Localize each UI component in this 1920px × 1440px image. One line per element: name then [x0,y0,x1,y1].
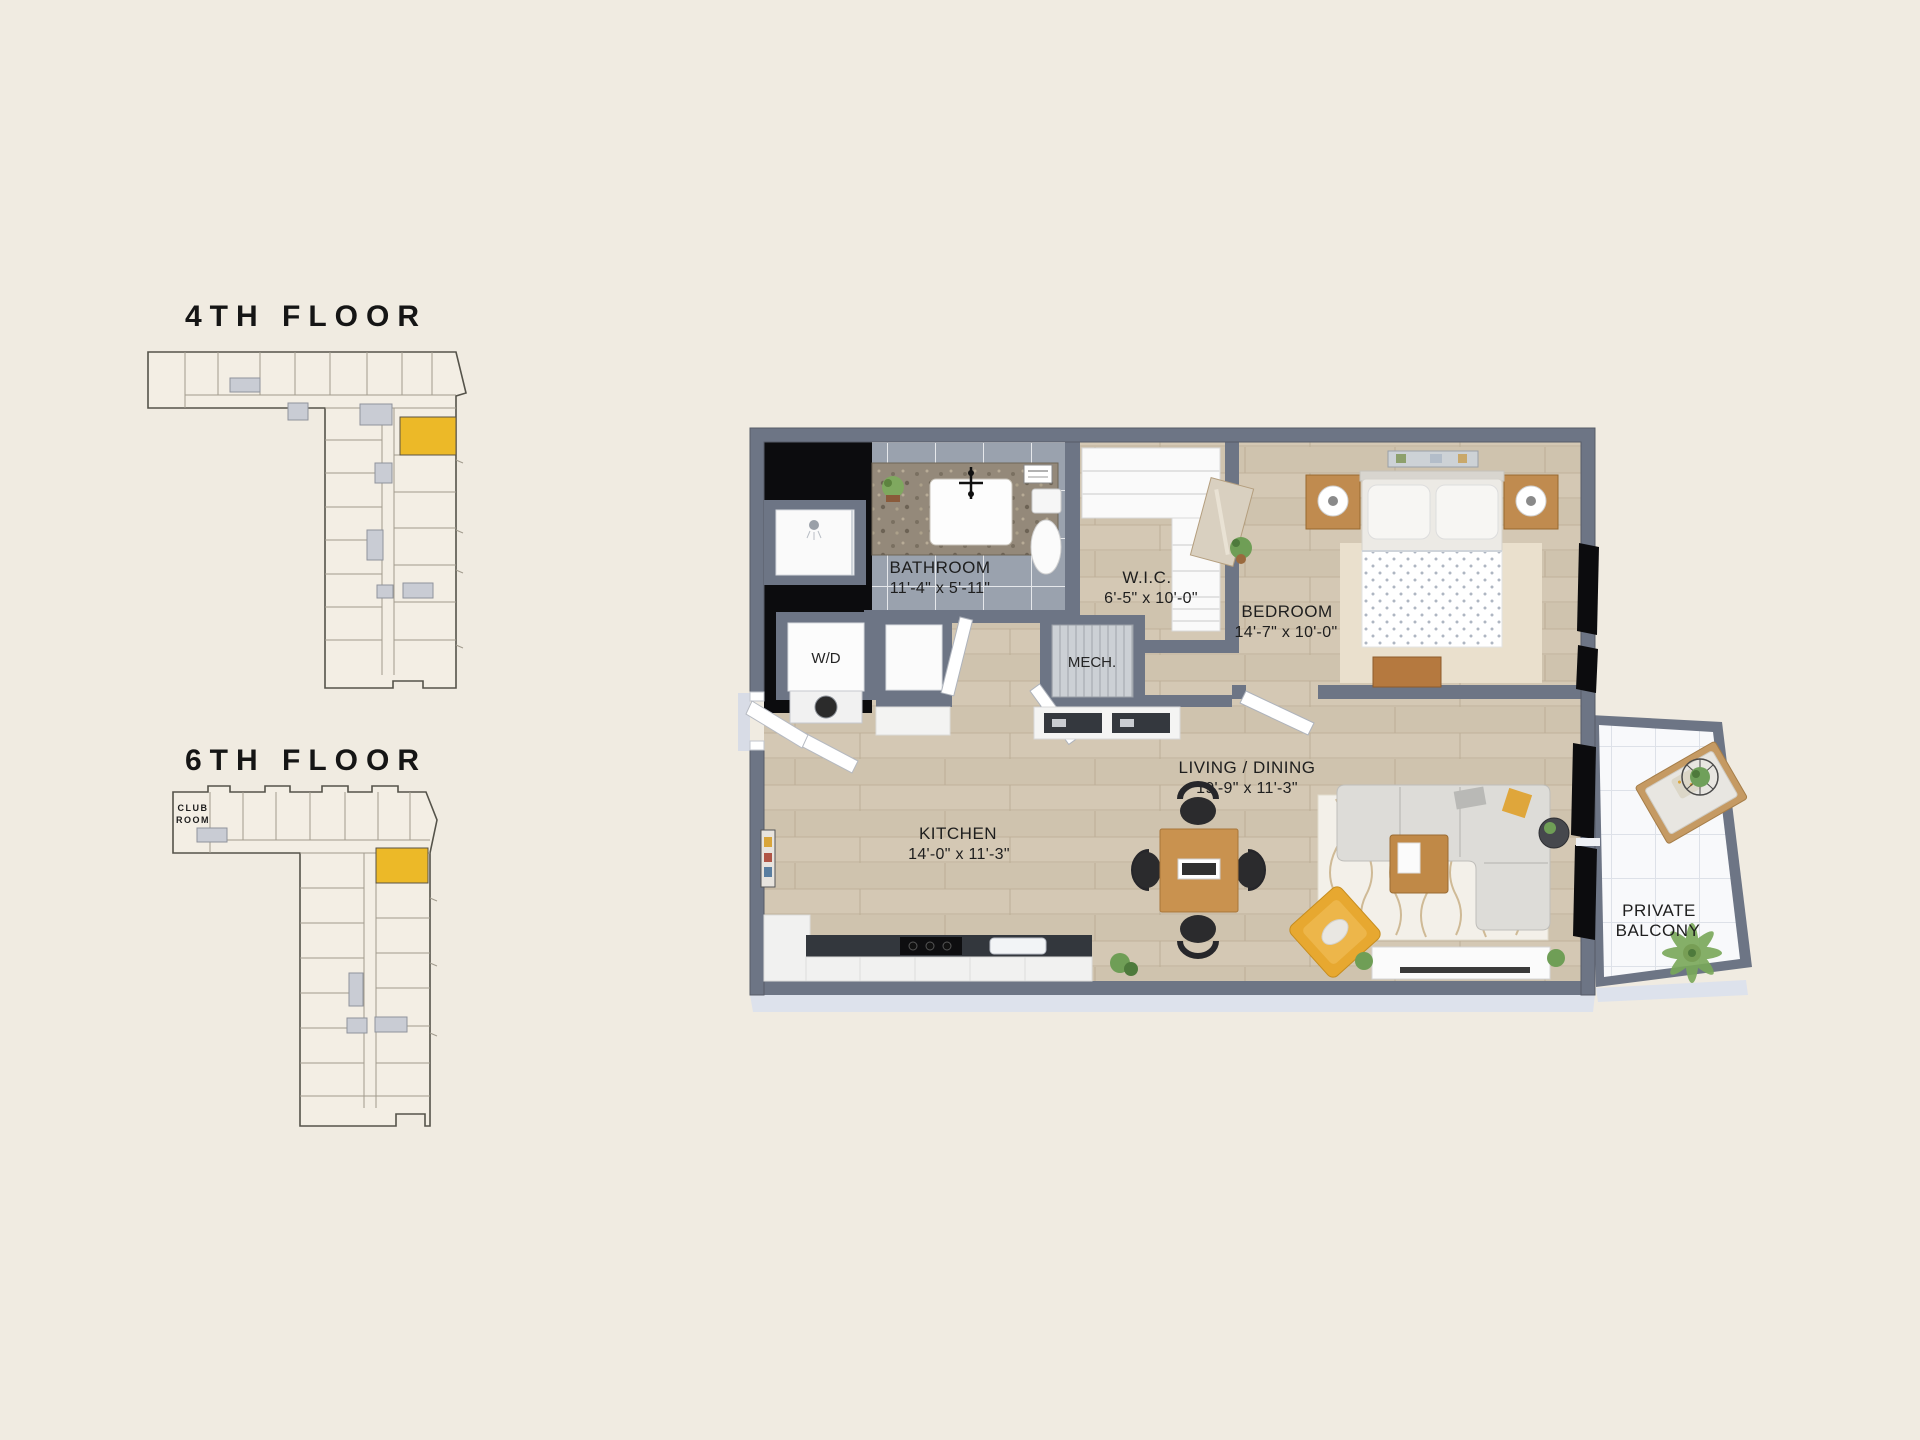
club-room-label-line1: CLUB [178,803,209,813]
bedroom-label: BEDROOM [1241,602,1332,621]
duvet [1362,551,1502,647]
balcony-label-line2: BALCONY [1616,921,1701,940]
cooktop [900,937,962,955]
mech-closet: MECH. [1040,615,1145,707]
wic-label: W.I.C. [1122,568,1171,587]
locator-title-4th-floor: 4TH FLOOR [110,300,502,334]
building-outline [148,352,466,688]
kitchen-counter-upper-left [876,707,950,735]
nightstand-left [1306,475,1360,529]
kitchen-corner-cabinet [764,915,810,981]
bathroom-label: BATHROOM [890,558,991,577]
floorplan-page: 4TH FLOOR 6 [0,0,1920,1440]
shower [764,500,866,585]
mech-label: MECH. [1068,654,1116,671]
living-dining-label: LIVING / DINING [1179,758,1316,777]
tv-panel [1400,967,1530,973]
bedroom-dresser [1373,657,1441,687]
kitchen-label: KITCHEN [919,824,997,843]
pillow [1436,485,1498,539]
club-room-label-line2: ROOM [176,815,210,825]
highlighted-unit-4th [400,417,456,455]
wic-dims: 6'-5" x 10'-0" [1104,590,1198,607]
locator-plan-4th-floor [110,340,502,708]
window-mullion [1576,838,1600,846]
wic-shelf-top [1082,448,1220,518]
bathroom-dims: 11'-4" x 5'-11" [890,580,991,597]
round-side-table [1539,818,1569,848]
kitchen-cabinet-face [806,957,1092,981]
book [1398,843,1420,873]
plant [1547,949,1565,967]
unit-floor-plan: PRIVATE BALCONY [600,395,1800,1095]
nightstand-right [1504,475,1558,529]
locator-title-6th-floor: 6TH FLOOR [110,744,502,778]
toilet [1031,489,1061,574]
plant [1355,952,1373,970]
table-centerpiece [1182,863,1216,875]
towel-rack-icon [1024,465,1052,483]
pillow [1368,485,1430,539]
kitchen-sink [990,938,1046,954]
media-console [1355,947,1565,979]
bed [1360,471,1504,647]
wd-label: W/D [811,650,840,667]
unit-slab-edge [750,995,1595,1012]
highlighted-unit-6th [376,848,428,883]
entry-slab-edge [738,693,750,751]
kitchen-dims: 14'-0" x 11'-3" [908,846,1010,863]
bedroom-dims: 14'-7" x 10'-0" [1235,624,1338,641]
hall-closet [876,615,952,700]
washer-drum [815,696,837,718]
balcony-label-line1: PRIVATE [1622,901,1696,920]
coffee-table [1390,835,1448,893]
private-balcony: PRIVATE BALCONY [1590,715,1752,1002]
locator-plan-6th-floor: CLUB ROOM [110,778,502,1178]
